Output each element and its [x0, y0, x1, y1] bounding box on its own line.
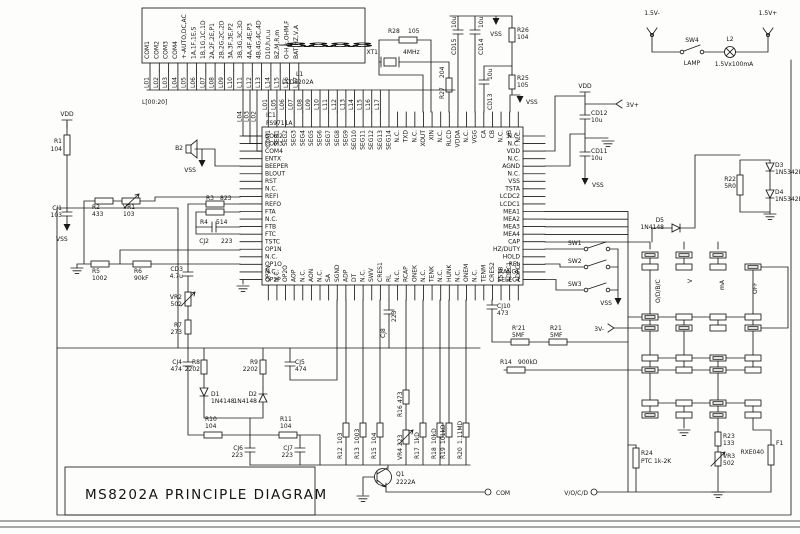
- ic-top-pin-label: SEG1: [273, 130, 280, 146]
- svg-text:1N5342B: 1N5342B: [775, 196, 800, 203]
- svg-text:4.7u: 4.7u: [170, 273, 184, 280]
- sw3-label: SW3: [568, 281, 582, 288]
- schematic-canvas: MS8202A PRINCIPLE DIAGRAM -8.8.8.8 COM1C…: [0, 0, 800, 534]
- vss-label: VSS: [184, 167, 196, 174]
- ic-com-wire-label: L04L03L02: [237, 111, 258, 122]
- ic-top-wire-label-label: L01: [262, 99, 269, 110]
- svg-text:223: 223: [221, 238, 233, 245]
- vocd-terminal-icon: [591, 489, 597, 495]
- ic-top-pin-label: SEG12: [368, 130, 375, 150]
- ic-top-pin-label: RLCD: [446, 130, 453, 147]
- ic-top-wire-label: L01L05L06L07L08L09L10L11L12L13L14L15L16L…: [262, 90, 381, 112]
- ic-top-wire-label-label: L09: [305, 99, 312, 110]
- svg-text:R27: R27: [439, 87, 446, 99]
- lcd-seg-label-label: D10,h,n,u: [265, 29, 272, 59]
- rotary-pos1-label: O/D/B/C: [655, 279, 662, 303]
- svg-text:5R0: 5R0: [724, 183, 736, 190]
- ic-top-pin-label: COM1: [265, 130, 272, 148]
- ic-top-pin-label: VB: [506, 130, 513, 138]
- svg-text:R6: R6: [134, 268, 142, 275]
- ic-right-pin-label: N.C.: [508, 171, 521, 178]
- ic-top-pin: COM1SEG1SEG2SEG3SEG4SEG5SEG6SEG7SEG8SEG9…: [265, 112, 522, 150]
- svg-text:R14: R14: [500, 359, 512, 366]
- ic-bottom-pin-label: CRES1: [377, 262, 384, 282]
- ic-left-pin-label: RST: [265, 178, 277, 185]
- svg-text:R11: R11: [280, 416, 292, 423]
- ic-top-pin-label: N.C.: [437, 130, 444, 143]
- lcd-pin-label-label: L06: [190, 77, 197, 88]
- lcd-seg-label-label: O-H,k,OHM,F: [284, 20, 291, 59]
- svg-text:VR3: VR3: [723, 453, 735, 460]
- lcd-seg-label: COM1COM2COM3COM4+-AUTO,DC,AC1A,1F,1E,S1B…: [144, 14, 300, 71]
- svg-text:CJ7: CJ7: [283, 445, 293, 452]
- capacitor-CJ10: [487, 305, 497, 309]
- svg-text:223: 223: [282, 452, 294, 459]
- svg-text:10u: 10u: [487, 68, 494, 80]
- ic-left-pin-label: N.C.: [265, 254, 278, 261]
- vss-arrow-icon: [199, 160, 206, 167]
- v3minus-label: 3V-: [594, 326, 604, 333]
- ic-bottom-pin-label: RL: [385, 274, 392, 282]
- sw1-label: SW1: [568, 240, 582, 247]
- ic-top-pin-label: SEG9: [342, 130, 349, 146]
- ic-top-wire-label-label: L16: [365, 99, 372, 110]
- vdd-bar-icon: [62, 120, 72, 128]
- svg-text:R8: R8: [192, 359, 200, 366]
- lamp-x: [726, 48, 734, 56]
- ic-left-pin-label: FTC: [265, 231, 276, 238]
- svg-text:CD14: CD14: [478, 38, 485, 55]
- battery-pos-label: 1.5V+: [759, 10, 778, 17]
- vss-arrow-icon: [64, 224, 71, 231]
- svg-text:CD12: CD12: [591, 110, 608, 117]
- ic-bottom-pin-label: HUNK: [446, 264, 453, 282]
- svg-text:R3: R3: [206, 195, 214, 202]
- ic-top-pin-label: SEG7: [325, 130, 332, 146]
- ic-top-pin-label: TXD: [403, 130, 410, 144]
- lcd-pin-label-label: L02: [153, 77, 160, 88]
- svg-text:CJ2: CJ2: [199, 238, 209, 245]
- lcd-pin-label-label: L04: [171, 77, 178, 88]
- svg-text:RXE040: RXE040: [740, 449, 764, 456]
- svg-text:R19: R19: [440, 447, 447, 459]
- svg-text:502: 502: [723, 460, 735, 467]
- svg-text:D1: D1: [211, 391, 220, 398]
- capacitor-CD11: [580, 152, 590, 156]
- vss-label: VSS: [592, 182, 604, 189]
- svg-text:514: 514: [216, 219, 228, 226]
- svg-text:R28: R28: [388, 28, 400, 35]
- svg-text:R7: R7: [174, 322, 182, 329]
- lcd-part: LCD8202A: [282, 79, 314, 86]
- diode-D5: [672, 224, 680, 232]
- lcd-seg-label-label: COM4: [172, 41, 179, 59]
- capacitor-CD3: [183, 272, 193, 276]
- svg-text:473: 473: [497, 310, 509, 317]
- crystal-XT1: [384, 58, 396, 66]
- com-terminal-icon: [485, 489, 491, 495]
- vss-label: VSS: [526, 99, 538, 106]
- ic-right-pin-label: MEA4: [503, 231, 520, 238]
- lcd-pin-label-label: L11: [237, 77, 244, 88]
- ic-right-pin-label: MEA2: [503, 216, 520, 223]
- ic-top-pin-label: VGG: [472, 130, 479, 144]
- svg-text:473: 473: [397, 391, 404, 403]
- sw4-ref: SW4: [685, 37, 699, 44]
- resistor-R9: [260, 360, 266, 374]
- svg-text:D4: D4: [775, 189, 784, 196]
- ic-bottom-pin-label: N.C.: [437, 269, 444, 282]
- sw2-blade: [588, 260, 606, 266]
- lcd-pin-label-label: L12: [246, 77, 253, 88]
- battery-neg-label: 1.5V-: [644, 10, 659, 17]
- svg-text:R1: R1: [54, 138, 62, 145]
- ic-bottom-pin-label: TENM: [480, 265, 487, 283]
- ic-right-pin-label: VSS: [508, 178, 520, 185]
- svg-text:R12: R12: [337, 447, 344, 459]
- ic-bottom-pin-label: ADPC1: [506, 261, 513, 282]
- svg-text:133: 133: [723, 440, 735, 447]
- lcd-seg-label-label: 2A,2F,2E,P1: [209, 23, 216, 59]
- sw3-blade: [588, 283, 606, 289]
- svg-text:D3: D3: [775, 162, 784, 169]
- ic-right-pin-label: CAP: [508, 239, 520, 246]
- ic-bottom-pin-label: N.C.: [299, 269, 306, 282]
- ic-bottom-pin-label: N.C.: [472, 269, 479, 282]
- ic-top-pin-label: VDDA: [454, 129, 461, 147]
- ic-right-pin-label: AGND: [502, 163, 520, 170]
- ic-top-pin-label: SEG6: [317, 130, 324, 146]
- svg-text:1003: 1003: [354, 429, 361, 444]
- capacitor-CJ7: [295, 448, 305, 452]
- resistor-R1: [64, 135, 70, 155]
- vocd-terminal-label: V/O/C/D: [564, 490, 588, 497]
- diode-D1: [200, 388, 208, 402]
- wires-bottom: [250, 300, 642, 495]
- svg-text:D5: D5: [656, 217, 665, 224]
- svg-text:10u: 10u: [451, 16, 458, 28]
- resistor-R28: [399, 37, 417, 43]
- ic-top-pin-label: XOUT: [420, 130, 427, 147]
- resistor-R14: [507, 367, 525, 373]
- svg-text:CD15: CD15: [451, 38, 458, 55]
- ic-bottom-pin-label: N.C.: [454, 269, 461, 282]
- vss-label: VSS: [56, 236, 68, 243]
- ic-top-wire-label-label: L17: [374, 99, 381, 110]
- svg-text:10u: 10u: [478, 16, 485, 28]
- rotary-pos2-label: V: [687, 278, 694, 283]
- svg-text:90kF: 90kF: [134, 275, 149, 282]
- diode-D4: [766, 190, 774, 204]
- ic-bottom-pin: OP2NN.C.OP2OAOPN.C.AONN.C.SASGNDADPDTN.C…: [265, 261, 522, 300]
- lcd-seg-label-label: 1A,1F,1E,S: [191, 26, 198, 59]
- battery-pos-terminal-icon: [763, 28, 773, 45]
- resistor-R22: [737, 175, 743, 195]
- ic-left-pin-label: COM4: [265, 148, 283, 155]
- svg-text:1N4148: 1N4148: [233, 398, 257, 405]
- ic-bottom-pin-label: SWV: [368, 267, 375, 282]
- vdd-label: VDD: [578, 83, 592, 90]
- capacitor-CD15: [453, 30, 463, 34]
- sw2-contact: [606, 265, 610, 269]
- svg-text:R'21: R'21: [512, 325, 526, 332]
- ic-left-pin-label: OP1N: [265, 246, 282, 253]
- resistor-R25: [509, 75, 515, 89]
- schematic-page: MS8202A PRINCIPLE DIAGRAM -8.8.8.8 COM1C…: [0, 0, 800, 534]
- svg-text:CJ10: CJ10: [497, 303, 511, 310]
- ic-top-wire-label-label: L14: [348, 99, 355, 110]
- capacitor-CJ6: [245, 448, 255, 452]
- svg-text:VR2: VR2: [170, 294, 182, 301]
- svg-text:502: 502: [171, 301, 183, 308]
- ic-bottom-pin-label: N.C.: [394, 269, 401, 282]
- rotary-pos3-label: mA: [719, 279, 726, 290]
- ic-left-pin-label: N.C.: [265, 216, 278, 223]
- ic-bottom-pin-label: SA: [325, 273, 332, 282]
- svg-text:223: 223: [397, 434, 404, 446]
- resistor-R4: [206, 209, 224, 215]
- svg-text:433: 433: [92, 211, 104, 218]
- lcd-pin-label-label: L05: [181, 77, 188, 88]
- ic-bottom-pin-label: RCAP: [403, 266, 410, 282]
- ic-bottom-pin-label: ADP: [342, 269, 349, 282]
- lcd-seg-label-label: BAT,HZ,V,A: [293, 24, 300, 59]
- svg-text:R15: R15: [371, 447, 378, 459]
- svg-text:R18: R18: [431, 447, 438, 459]
- svg-text:CD11: CD11: [591, 148, 608, 155]
- svg-text:Q1: Q1: [396, 471, 405, 478]
- svg-text:VR1: VR1: [123, 204, 135, 211]
- svg-text:10kD: 10kD: [431, 428, 438, 444]
- ic-top-wire-label-label: L05: [270, 99, 277, 110]
- lcd-ref: L1: [296, 71, 303, 78]
- ic-left-pin-label: ENTX: [265, 155, 281, 162]
- ic-bottom-pin-label: ADPC2: [515, 261, 522, 282]
- svg-text:CD13: CD13: [487, 93, 494, 110]
- vss-arrow-icon: [517, 96, 524, 103]
- ic-top-wire-label-label: L10: [314, 99, 321, 110]
- svg-text:104: 104: [205, 423, 217, 430]
- lcd-pin-label-label: L09: [218, 77, 225, 88]
- svg-text:CJ1: CJ1: [52, 205, 62, 212]
- capacitor-CJ1: [62, 212, 72, 216]
- resistor-R26: [509, 28, 515, 42]
- svg-text:1N4148: 1N4148: [211, 398, 235, 405]
- capacitor-CJ5: [285, 362, 295, 366]
- ic-top-pin-label: SEG5: [308, 130, 315, 146]
- ic-top-pin-label: CB: [489, 130, 496, 138]
- resistor-R5: [91, 261, 109, 267]
- lcd-pin-label-label: L07: [199, 77, 206, 88]
- ic-bottom-pin-label: OP2O: [282, 265, 289, 282]
- svg-text:1N4148: 1N4148: [640, 224, 664, 231]
- ic-top-pin-label: N.C.: [463, 130, 470, 143]
- svg-text:223: 223: [391, 310, 398, 322]
- ic-left-pin-label: BLOUT: [265, 171, 285, 178]
- ic-top-wire-label-label: L13: [339, 99, 346, 110]
- lcd-seg-label-label: 3A,3F,3E,P2: [228, 23, 235, 59]
- vss-arrow-icon: [493, 18, 500, 25]
- svg-text:R5: R5: [92, 268, 100, 275]
- ic-bottom-pin-label: CRES2: [489, 262, 496, 282]
- lcd-pin-label-label: L08: [209, 77, 216, 88]
- ic-com-wire-label-label: L04: [237, 111, 244, 122]
- v3minus-arrow-icon: [608, 324, 614, 332]
- diode-D3: [766, 163, 774, 177]
- ic-top-pin-label: N.C.: [515, 130, 522, 143]
- svg-text:10u: 10u: [591, 155, 603, 162]
- ic-left-pin-label: BEEPER: [265, 163, 288, 170]
- resistor-R23: [715, 432, 721, 446]
- ic-bottom-pin-label: TSTB: [498, 267, 505, 283]
- svg-text:1002: 1002: [92, 275, 107, 282]
- svg-text:R17: R17: [414, 447, 421, 459]
- svg-text:R16: R16: [397, 405, 404, 417]
- com-terminal-label: COM: [496, 490, 510, 497]
- ic-right-pin-label: HOLD: [503, 254, 521, 261]
- ic-right-pin-label: HZ/DUTY: [493, 246, 520, 253]
- svg-text:VR4: VR4: [397, 448, 404, 460]
- svg-text:CJ4: CJ4: [172, 359, 182, 366]
- ic-top-pin-label: SEG14: [385, 130, 392, 150]
- svg-text:104: 104: [51, 146, 63, 153]
- lcd-seg-label-label: COM2: [153, 41, 160, 59]
- ic-top-pin-label: SEG13: [377, 130, 384, 150]
- svg-text:273: 273: [171, 329, 183, 336]
- rotary-switch-pads: [642, 252, 761, 418]
- ic-top-pin-label: CA: [480, 129, 487, 138]
- svg-text:10u: 10u: [591, 117, 603, 124]
- ic-top-pin-label: SEG2: [282, 130, 289, 146]
- sw4-blade: [684, 45, 700, 51]
- diode-D2: [259, 388, 267, 402]
- svg-text:474: 474: [295, 366, 307, 373]
- sw2-contact: [584, 265, 588, 269]
- lamp-ref: L2: [726, 36, 733, 43]
- v3plus-label: 3V+: [626, 102, 639, 109]
- ic-top-pin-label: N.C.: [498, 130, 505, 143]
- resistor-R21: [549, 339, 567, 345]
- resistor-R8: [201, 360, 207, 374]
- svg-text:CJ5: CJ5: [295, 359, 305, 366]
- buzzer-icon: [186, 145, 191, 153]
- lcd-pin-label-label: L14: [264, 77, 271, 88]
- svg-text:1.11MD: 1.11MD: [457, 420, 464, 444]
- svg-text:R2: R2: [92, 204, 100, 211]
- lcd-bus-label: L[00:20]: [142, 99, 167, 106]
- sw4-contact: [700, 50, 704, 54]
- lcd-pin-label-label: L10: [227, 77, 234, 88]
- ic-bottom-pin-label: SGND: [334, 264, 341, 282]
- ic-right-pin-label: LCDC2: [500, 193, 520, 200]
- svg-text:104: 104: [371, 432, 378, 444]
- sw1-contact: [606, 247, 610, 251]
- svg-text:823: 823: [220, 195, 232, 202]
- ic-bottom-pin-label: ONEK: [411, 264, 418, 282]
- ic-left-pin-label: FTB: [265, 223, 276, 230]
- ic-fs9711a: IC1 FS9711A COM2COM3COM4ENTXBEEPERBLOUTR…: [237, 90, 546, 300]
- battery-neg-terminal-icon: [647, 28, 657, 45]
- ic-left-pin-label: REFO: [265, 201, 281, 208]
- ic-top-wire-label-label: L11: [322, 99, 329, 110]
- svg-text:1N5342B: 1N5342B: [775, 169, 800, 176]
- resistor-R10: [204, 432, 222, 438]
- sw2-label: SW2: [568, 258, 582, 265]
- ic-right-pin-label: N.C.: [508, 155, 521, 162]
- svg-text:474: 474: [171, 366, 183, 373]
- lcd-seg-label-label: 1B,1G,1C,1D: [200, 20, 207, 59]
- svg-text:R13: R13: [354, 447, 361, 459]
- ic-right-pin-label: MEA3: [503, 223, 520, 230]
- svg-text:223: 223: [232, 452, 244, 459]
- ic-top-pin-label: SEG11: [360, 130, 367, 150]
- ic-left-pin-label: FTA: [265, 208, 277, 215]
- ic-bottom-pin-label: AON: [308, 269, 315, 282]
- svg-text:5MF: 5MF: [550, 332, 563, 339]
- svg-text:900kD: 900kD: [518, 359, 538, 366]
- svg-text:CJ6: CJ6: [233, 445, 243, 452]
- svg-text:2202: 2202: [185, 366, 200, 373]
- ic-bottom-pin-label: N.C.: [273, 269, 280, 282]
- v3plus-arrow-icon: [616, 100, 622, 108]
- resistor-R11: [279, 432, 297, 438]
- ic-left-pin: COM2COM3COM4ENTXBEEPERBLOUTRSTN.C.REFIRE…: [240, 133, 288, 283]
- ic-top-pin-label: N.C.: [394, 130, 401, 143]
- ic-part: FS9711A: [266, 120, 293, 127]
- svg-text:F1: F1: [776, 440, 783, 447]
- svg-text:R20: R20: [457, 447, 464, 459]
- ic-top-wire-label-label: L07: [288, 99, 295, 110]
- capacitor-CD12: [580, 115, 590, 119]
- lcd-pin-label-label: L15: [274, 77, 281, 88]
- ic-right-pin: N.C.N.C.VDDN.C.AGNDN.C.VSSTSTALCDC2LCDC1…: [493, 133, 545, 283]
- resistor-R24: [633, 448, 639, 468]
- ic-top-wire-label-label: L15: [357, 99, 364, 110]
- ic-right-pin-label: LCDC1: [500, 201, 520, 208]
- ic-ref: IC1: [266, 112, 276, 119]
- lcd-module: -8.8.8.8 COM1COM2COM3COM4+-AUTO,DC,AC1A,…: [142, 8, 455, 106]
- ic-bottom-pin-label: ONEM: [463, 264, 470, 282]
- vss-label: VSS: [490, 31, 502, 38]
- lcd-seg-label-label: 4B,4G,4C,4D: [256, 20, 263, 59]
- lcd-pin-label-label: L03: [162, 77, 169, 88]
- lcd-seg-label-label: BZ,M,R,m: [274, 30, 281, 59]
- fuse-F1: [768, 445, 774, 465]
- lcd-seg-label-label: COM3: [163, 41, 170, 59]
- svg-text:PTC 1k-2K: PTC 1k-2K: [641, 458, 672, 465]
- ic-right-pin-label: TSTA: [504, 186, 521, 193]
- lcd-seg-label-label: +-AUTO,DC,AC: [181, 14, 188, 59]
- ic-top-pin-label: SEG10: [351, 130, 358, 150]
- ic-top-wire-label-label: L06: [279, 99, 286, 110]
- vss-arrow-icon: [615, 298, 622, 305]
- lcd-pin-label-label: L01: [144, 77, 151, 88]
- svg-text:D2: D2: [249, 391, 258, 398]
- lcd-seg-label-label: COM1: [144, 41, 151, 59]
- sw4-contact: [680, 50, 684, 54]
- ic-left-pin-label: REFI: [265, 193, 278, 200]
- resistor-R7: [185, 320, 191, 334]
- ic-right-pin-label: MEA1: [503, 208, 520, 215]
- resistor-R6: [133, 261, 151, 267]
- ic-bottom-pin-label: OP2N: [265, 265, 272, 282]
- svg-text:104: 104: [280, 423, 292, 430]
- vr2-arrow: [181, 292, 195, 306]
- svg-text:2222A: 2222A: [396, 479, 416, 486]
- lcd-seg-label-label: 2B,2G,2C,2D: [218, 20, 225, 59]
- svg-text:103: 103: [51, 212, 63, 219]
- ic-bottom-pin-label: N.C.: [360, 269, 367, 282]
